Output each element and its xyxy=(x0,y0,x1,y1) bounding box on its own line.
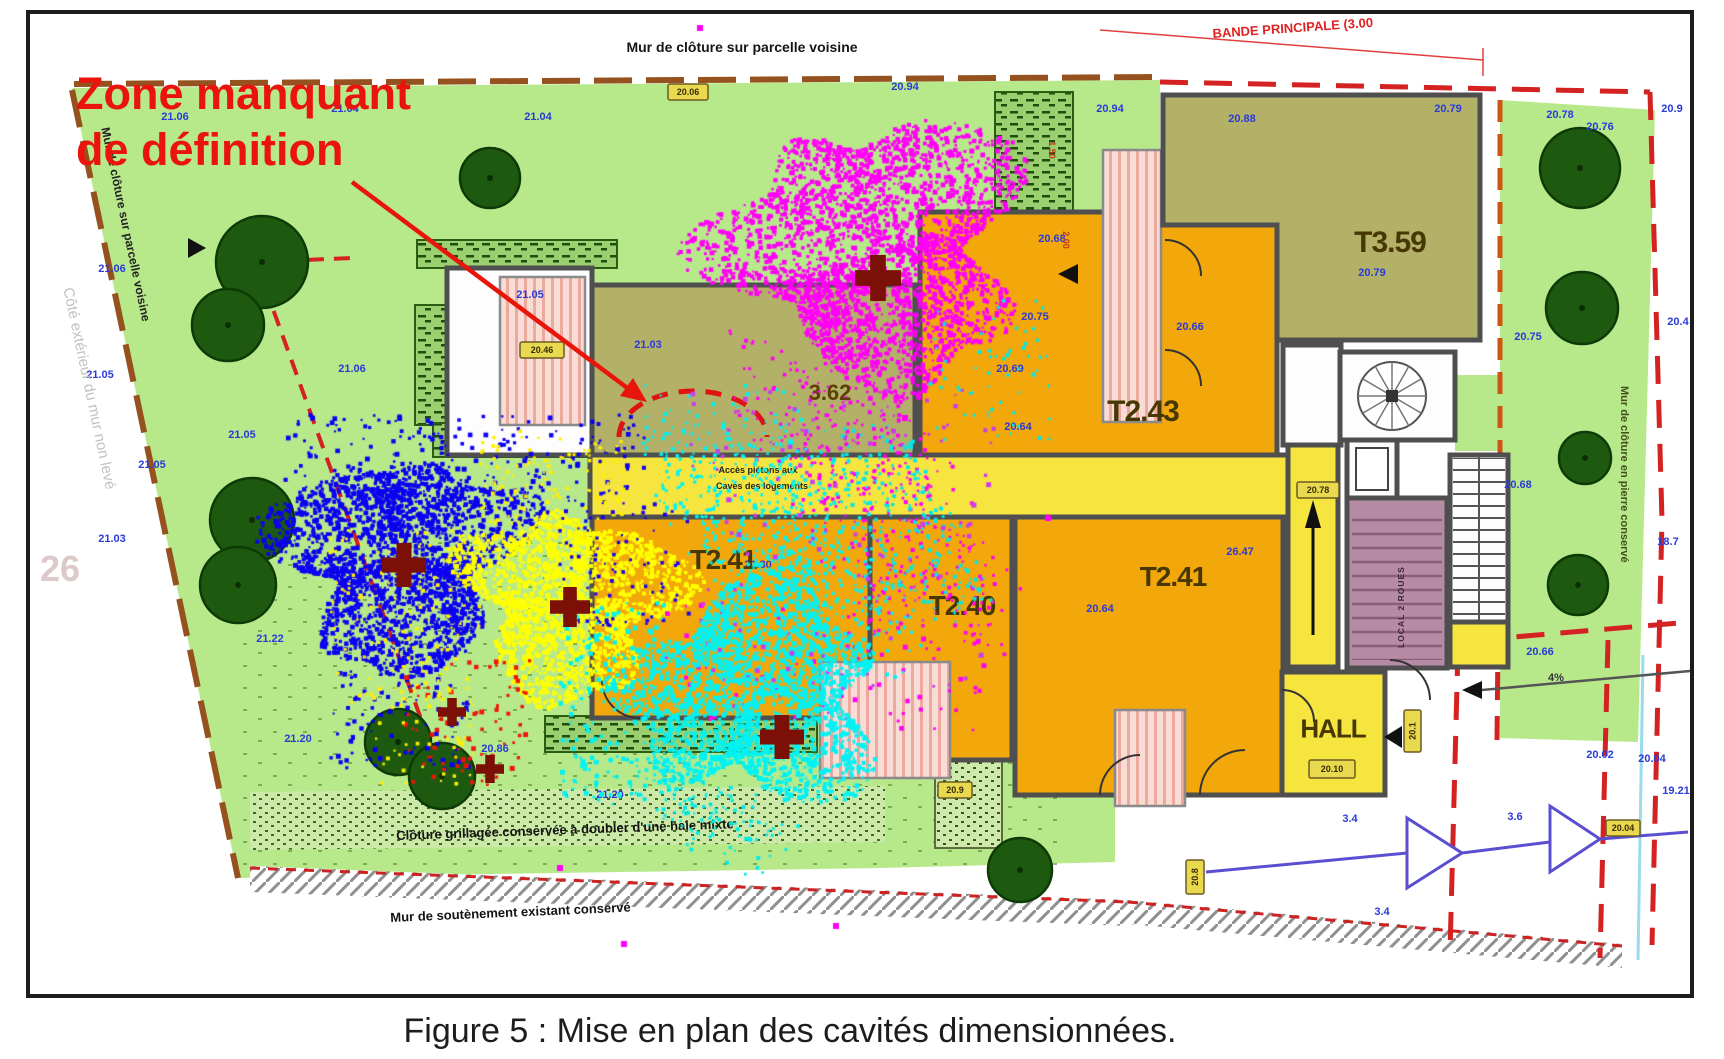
zone-annotation-line2: de définition xyxy=(76,122,411,178)
zone-annotation-line1: Zone manquant xyxy=(76,66,411,122)
zone-annotation: Zone manquant de définition xyxy=(76,66,411,178)
annotation-layer: Zone manquant de définition 3.62 xyxy=(0,0,1724,1010)
figure-caption: Figure 5 : Mise en plan des cavités dime… xyxy=(0,1012,1580,1051)
room-label-3-62: 3.62 xyxy=(809,380,852,406)
figure-page: 21.0621.0421.0421.0620.9420.9420.8820.79… xyxy=(0,0,1724,1059)
